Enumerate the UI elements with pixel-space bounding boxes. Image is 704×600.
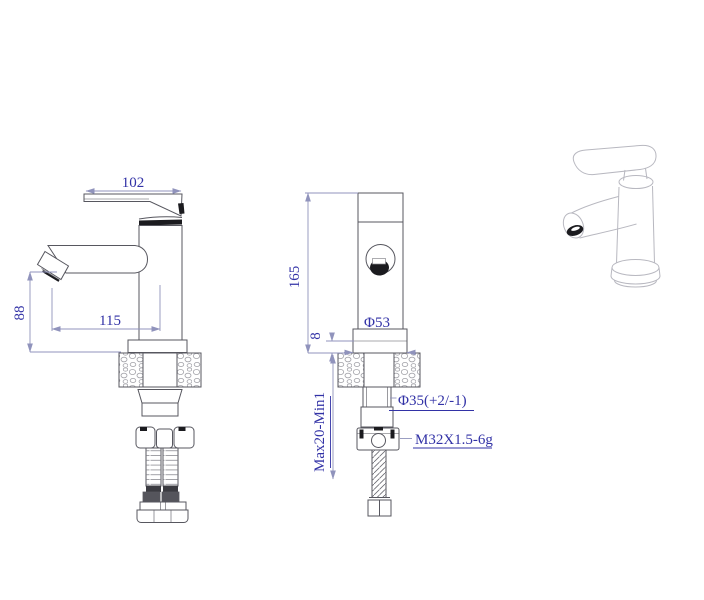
hose-connector-mid [157, 429, 173, 448]
persp-spout-cap [560, 210, 588, 241]
cap-dark-band [139, 220, 182, 226]
dim-label-102: 102 [122, 175, 145, 191]
base-flange [128, 340, 187, 353]
cap-curve [139, 217, 182, 219]
front-countertop-hatch-left [338, 353, 364, 387]
dim-label-8: 8 [308, 332, 324, 340]
persp-base-side-left [611, 268, 612, 277]
persp-base-top [612, 260, 659, 276]
shank-upper [363, 387, 391, 407]
hose-right-corrugation [163, 448, 178, 486]
countertop-hatch-left [119, 353, 143, 387]
persp-spout-top [571, 197, 619, 214]
hose-end-block [137, 510, 188, 523]
threaded-stud-hatch [372, 450, 386, 498]
dim-label-115: 115 [99, 313, 121, 329]
technical-drawing-canvas: 102 88 115 [0, 0, 704, 600]
faucet-body [139, 226, 182, 341]
dim-label-max20: Max20-Min1 [312, 392, 328, 472]
hose-left-corrugation [146, 448, 161, 486]
persp-body-left [617, 187, 620, 264]
dim-label-m32: M32X1.5-6g [415, 432, 493, 448]
dim-label-d35: Φ35(+2/-1) [398, 393, 467, 409]
front-countertop-hatch-right [394, 353, 420, 387]
aerator-slot [373, 259, 386, 265]
dim-label-d53: Φ53 [364, 315, 390, 331]
connector-tick-left [140, 427, 147, 431]
hose-collar [140, 502, 186, 510]
persp-body-right [653, 186, 655, 264]
nut-slot-left [360, 430, 364, 439]
supply-hoses [136, 427, 194, 523]
hose-band-left [146, 486, 161, 493]
hose-nut-left [143, 492, 160, 502]
connector-tick-right [179, 427, 186, 431]
handle-lever [84, 194, 182, 216]
persp-base-rim [611, 276, 660, 284]
tailpiece [138, 390, 182, 404]
tailpipe [142, 403, 178, 416]
front-view: 165 8 Φ53 Max20-Min1 Φ35(+2/-1) M32X1.5-… [287, 193, 493, 516]
hose-nut-right [162, 492, 179, 502]
dim-label-88: 88 [12, 306, 28, 321]
front-view-mounting [338, 353, 420, 516]
persp-handle [573, 145, 656, 174]
side-view: 102 88 115 [12, 175, 201, 523]
persp-base-side-right [659, 268, 660, 277]
nut-slot-right [391, 430, 395, 439]
dim-label-165: 165 [287, 266, 303, 289]
hose-band-right [163, 486, 178, 493]
countertop-hatch-right [177, 353, 201, 387]
nut-top-tick [374, 427, 383, 431]
side-view-mounting [119, 353, 201, 416]
shank-lower [361, 407, 393, 427]
persp-spout-bottom [580, 224, 637, 238]
perspective-view [560, 145, 660, 287]
